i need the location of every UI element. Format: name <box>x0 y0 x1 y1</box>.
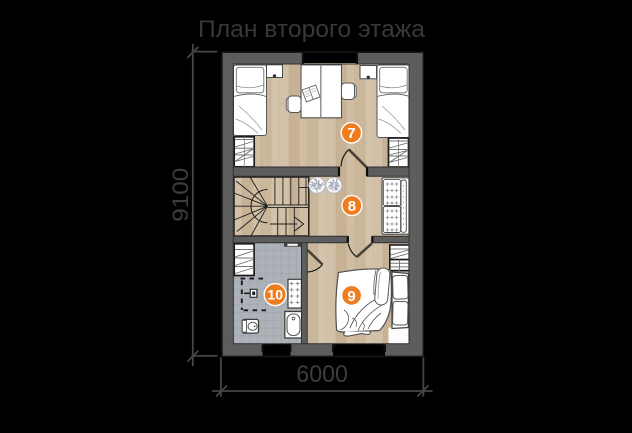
svg-text:6000: 6000 <box>296 361 348 388</box>
svg-text:10: 10 <box>267 287 283 303</box>
svg-text:План второго этажа: План второго этажа <box>198 16 425 43</box>
svg-text:9: 9 <box>347 288 355 305</box>
svg-text:9100: 9100 <box>168 168 193 222</box>
svg-text:7: 7 <box>347 125 355 142</box>
svg-text:8: 8 <box>348 198 356 215</box>
